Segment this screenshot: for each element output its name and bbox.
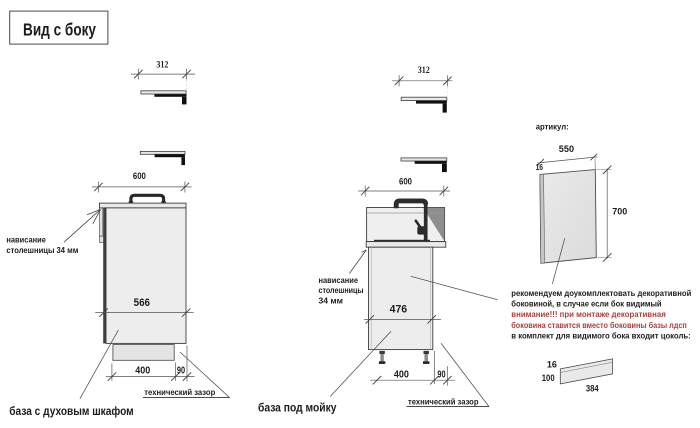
svg-text:Вид с боку: Вид с боку <box>23 20 96 40</box>
svg-text:в комплект для видимого бока в: в комплект для видимого бока входит цоко… <box>511 331 691 341</box>
svg-text:90: 90 <box>437 369 446 380</box>
svg-text:нависание: нависание <box>6 235 46 245</box>
svg-text:боковина ставится вместо боков: боковина ставится вместо боковины базы л… <box>511 320 687 330</box>
svg-text:566: 566 <box>134 297 150 309</box>
svg-text:боковиной, в случае если бок в: боковиной, в случае если бок видимый <box>511 299 661 309</box>
svg-text:16: 16 <box>536 163 544 172</box>
svg-text:100: 100 <box>542 373 555 383</box>
svg-text:312: 312 <box>418 66 430 76</box>
svg-text:столешницы 34 мм: столешницы 34 мм <box>6 245 78 255</box>
svg-text:550: 550 <box>559 144 574 155</box>
svg-text:90: 90 <box>177 365 186 376</box>
svg-text:внимание!!! при монтаже декора: внимание!!! при монтаже декоративная <box>511 309 666 319</box>
svg-text:400: 400 <box>135 365 150 376</box>
svg-text:600: 600 <box>399 177 412 187</box>
svg-text:34 мм: 34 мм <box>319 295 344 305</box>
svg-text:технический зазор: технический зазор <box>144 387 215 397</box>
svg-text:столешницы: столешницы <box>319 285 364 295</box>
svg-text:нависание: нависание <box>319 275 359 285</box>
svg-text:600: 600 <box>133 171 146 181</box>
svg-text:артикул:: артикул: <box>536 121 569 131</box>
svg-text:16: 16 <box>547 359 557 369</box>
svg-text:база с духовым шкафом: база с духовым шкафом <box>9 404 133 418</box>
svg-text:700: 700 <box>612 206 627 217</box>
svg-text:476: 476 <box>390 303 408 315</box>
svg-text:384: 384 <box>586 383 599 393</box>
svg-text:рекомендуем доукомплектовать д: рекомендуем доукомплектовать декоративно… <box>511 288 691 298</box>
svg-text:технический зазор: технический зазор <box>408 396 479 406</box>
svg-text:400: 400 <box>394 370 409 381</box>
svg-text:312: 312 <box>156 60 168 70</box>
svg-text:база под мойку: база под мойку <box>258 401 337 415</box>
